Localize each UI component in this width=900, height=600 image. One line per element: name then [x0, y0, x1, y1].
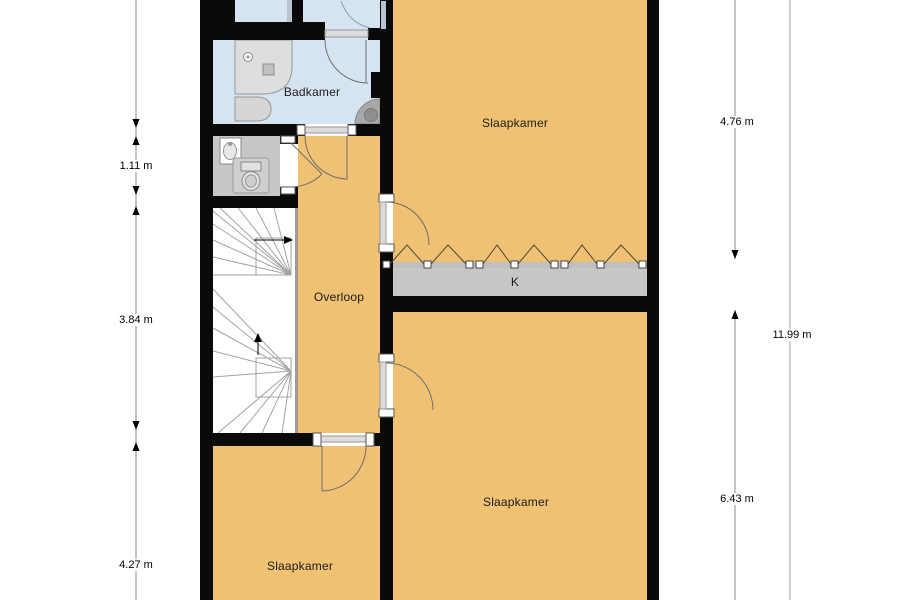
room-label-slaapkamer-left: Slaapkamer: [267, 559, 333, 573]
toilet-tank: [241, 162, 261, 171]
floorplan: Badkamer Slaapkamer Overloop K Slaapkame…: [0, 0, 900, 600]
floorplan-canvas: [0, 0, 900, 600]
door-post: [379, 354, 394, 362]
stair-overloop-edge: [295, 208, 298, 433]
dim-label-3-84: 3.84 m: [116, 314, 156, 326]
room-overloop-floor: [298, 136, 380, 433]
glass-partition: [287, 0, 292, 24]
wall-outer-right: [647, 0, 659, 600]
door-post: [297, 125, 305, 135]
shower-head-dot: [247, 56, 250, 59]
glazing-strip: [381, 1, 386, 29]
door-post: [379, 409, 394, 417]
dim-label-11-99: 11.99 m: [770, 329, 815, 341]
room-slaapkamer-top-floor: [393, 0, 647, 262]
shower-drain-icon: [263, 64, 274, 75]
dim-label-4-76: 4.76 m: [717, 116, 757, 128]
dimension-arrows-right: [732, 250, 739, 319]
door-leaf-slaapkamer-right: [380, 362, 386, 409]
wall-center-upper: [380, 0, 393, 201]
door-leaf-slaapkamer-top: [380, 202, 386, 244]
wall-stair-bedroom-left: [200, 433, 320, 446]
door-opening-bathroom-top: [325, 30, 368, 37]
dim-label-1-11: 1.11 m: [117, 160, 156, 172]
toilet-bowl: [246, 175, 257, 187]
door-opening-overloop-top: [305, 127, 348, 133]
room-top-left-cut: [235, 0, 287, 24]
toilet-sink-faucet: [228, 142, 232, 146]
door-post: [379, 244, 394, 252]
door-post: [366, 433, 374, 446]
wall-bathroom-bottom-left: [212, 124, 305, 136]
wall-bathroom-top: [235, 22, 325, 40]
wall-pier: [371, 72, 393, 98]
wall-bathroom-top-right: [368, 28, 380, 40]
door-post: [379, 194, 394, 202]
door-post: [281, 187, 295, 194]
wall: [292, 0, 303, 24]
corner-shower-drain: [365, 109, 378, 122]
dim-label-4-27: 4.27 m: [116, 559, 156, 571]
room-label-badkamer: Badkamer: [284, 85, 340, 99]
door-post: [313, 433, 321, 446]
room-label-slaapkamer-right: Slaapkamer: [483, 495, 549, 509]
bath-sink-icon: [235, 97, 271, 121]
wall-closet-bottom: [383, 296, 647, 312]
room-label-overloop: Overloop: [314, 290, 364, 304]
dim-label-6-43: 6.43 m: [717, 493, 757, 505]
room-label-kast: K: [511, 275, 519, 289]
door-sill-slaapkamer-left: [321, 436, 366, 442]
room-label-slaapkamer-top: Slaapkamer: [482, 116, 548, 130]
wall-toilet-bottom: [212, 196, 298, 208]
wall-outer-left: [200, 0, 213, 600]
door-post: [348, 125, 356, 135]
room-slaapkamer-right-floor: [393, 312, 647, 600]
wall-top-left-chunk: [213, 0, 235, 40]
door-post: [281, 136, 295, 143]
room-slaapkamer-left-floor: [213, 446, 380, 600]
